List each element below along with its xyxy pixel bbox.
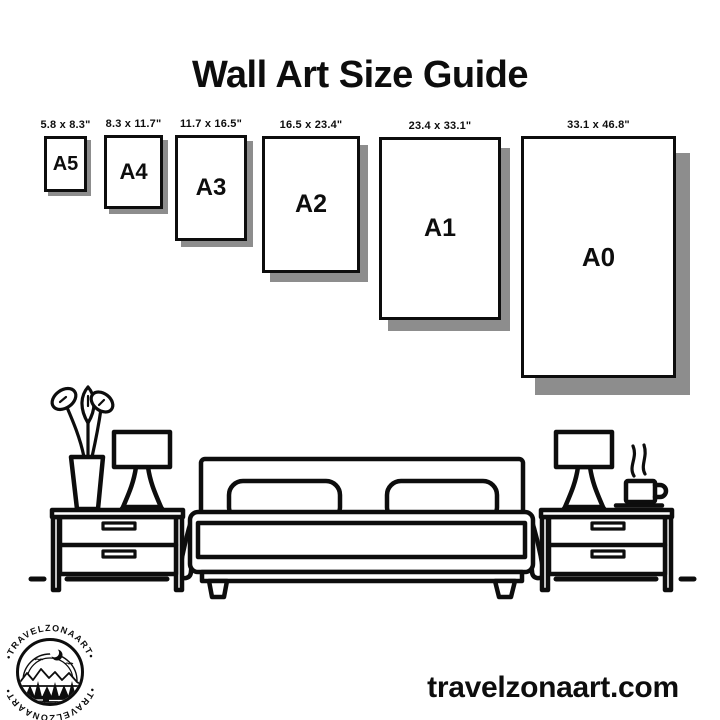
steam-icon	[632, 446, 634, 476]
steam-icon	[643, 445, 645, 474]
website-url: travelzonaart.com	[402, 671, 704, 705]
paper-box-a3: A3	[175, 135, 247, 241]
paper-box-a0: A0	[521, 136, 676, 378]
paper-box-a4: A4	[104, 135, 163, 209]
paper-box-a5: A5	[44, 136, 87, 192]
size-name-a5: A5	[53, 153, 79, 176]
bed-base	[202, 572, 522, 581]
brand-logo: •TRAVELZONAART• •TRAVELZONAART•	[5, 619, 95, 717]
bedroom-illustration	[0, 385, 720, 610]
wall-art-size-guide: Wall Art Size Guide 5.8 x 8.3" 8.3 x 11.…	[0, 0, 720, 720]
bed-leg-right	[495, 581, 515, 597]
size-name-a2: A2	[295, 190, 327, 219]
nightstand-right-icon	[541, 510, 672, 590]
size-name-a0: A0	[582, 242, 615, 273]
paper-box-a2: A2	[262, 136, 360, 273]
vase	[71, 457, 103, 509]
nightstand-left-icon	[52, 510, 183, 590]
size-name-a3: A3	[196, 174, 227, 202]
mattress-inner-line	[198, 523, 525, 557]
size-dimensions-a0: 33.1 x 46.8"	[501, 119, 696, 131]
size-name-a4: A4	[119, 159, 147, 185]
size-dimensions-a1: 23.4 x 33.1"	[359, 120, 521, 132]
moon-crescent-cutout	[50, 648, 59, 657]
size-name-a1: A1	[424, 214, 456, 243]
plant-icon	[48, 385, 117, 509]
page-title: Wall Art Size Guide	[0, 54, 720, 97]
bed-leg-left	[209, 581, 227, 597]
lamp-left-icon	[114, 432, 170, 509]
paper-box-a1: A1	[379, 137, 501, 320]
coffee-cup-icon	[616, 445, 666, 506]
lamp-right-icon	[556, 432, 612, 509]
bed-icon	[180, 459, 544, 597]
